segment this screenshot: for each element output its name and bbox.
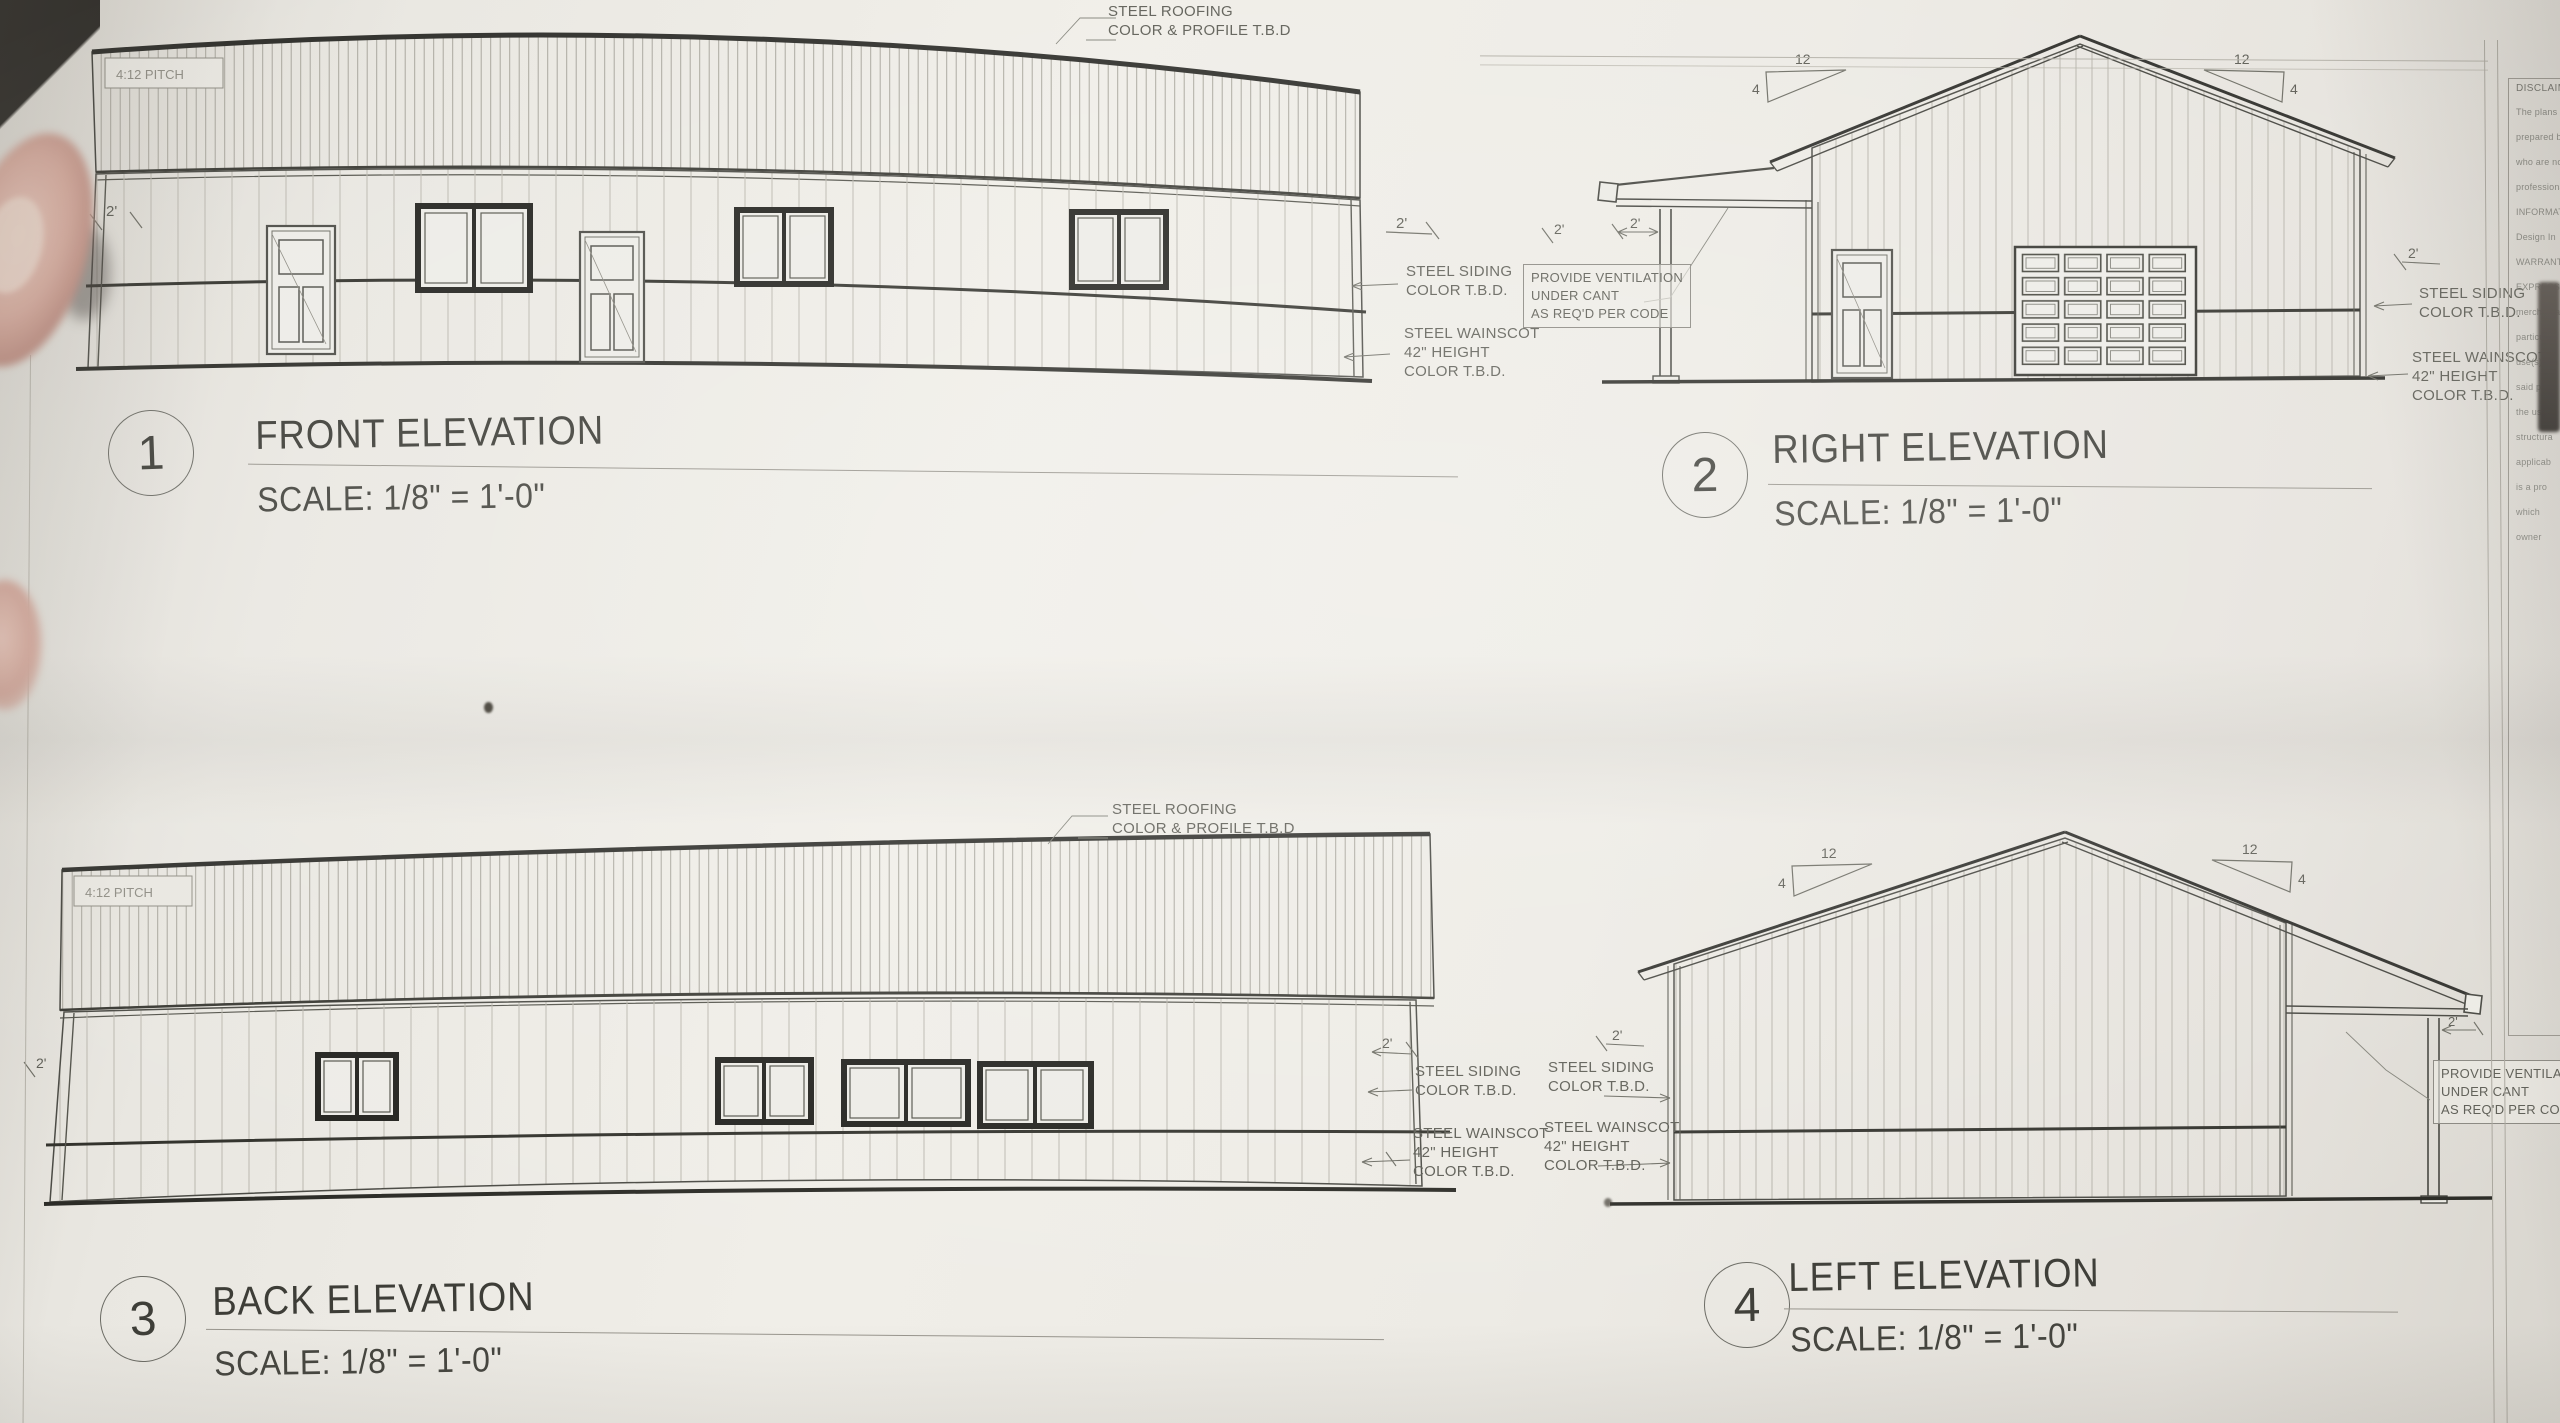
- note-line: COLOR & PROFILE T.B.D: [1112, 819, 1295, 838]
- back-window-3: [844, 1059, 968, 1127]
- pitch-rise-label: 12: [1795, 51, 1811, 67]
- back-roof: 4:12 PITCH: [60, 834, 1434, 1018]
- pitch-rise-label: 12: [2242, 841, 2258, 857]
- right-pitch-symbol-left: 12 4: [1752, 51, 1846, 102]
- left-elevation-scale: SCALE: 1/8" = 1'-0": [1790, 1316, 2079, 1360]
- note-line: 42" HEIGHT: [1544, 1137, 1680, 1156]
- disclaimer-line: prepared by: [2516, 125, 2560, 150]
- pitch-run-label: 4: [2298, 871, 2306, 887]
- right-note-arrows: [2368, 302, 2412, 380]
- front-entry-door-2: [580, 232, 644, 362]
- note-line: PROVIDE VENTILATION: [1531, 269, 1683, 287]
- right-left-overhang-dim: 2': [1554, 221, 1564, 237]
- title-rule: [248, 464, 1458, 478]
- finger-holding-paper: [0, 580, 42, 710]
- right-entry-door: [1832, 250, 1892, 378]
- disclaimer-line: owner: [2516, 525, 2560, 550]
- right-garage-door: [2015, 247, 2196, 375]
- left-ventilation-note: PROVIDE VENTILATION UNDER CANT AS REQ'D …: [2433, 1060, 2560, 1124]
- front-window-2: [737, 207, 831, 287]
- front-elevation-drawing: 4:12 PITCH: [30, 0, 1470, 420]
- elevation-number-3: 3: [98, 1274, 188, 1364]
- title-rule: [206, 1329, 1384, 1340]
- back-pitch-tag: 4:12 PITCH: [85, 885, 153, 900]
- left-wainscot-note: STEEL WAINSCOT 42" HEIGHT COLOR T.B.D.: [1544, 1118, 1680, 1175]
- right-eave-overhang-dim: 2': [2408, 245, 2418, 261]
- disclaimer-line: applicab: [2516, 450, 2560, 475]
- front-elevation-title: FRONT ELEVATION: [255, 409, 604, 460]
- back-wainscot-note: STEEL WAINSCOT 42" HEIGHT COLOR T.B.D.: [1413, 1124, 1549, 1181]
- disclaimer-line: Design In: [2516, 225, 2560, 250]
- note-line: STEEL WAINSCOT: [1413, 1124, 1549, 1143]
- note-line: 42" HEIGHT: [1413, 1143, 1549, 1162]
- paper-speck: [1604, 1198, 1612, 1207]
- front-roofing-leader: [1056, 18, 1116, 44]
- note-line: STEEL SIDING: [1406, 262, 1512, 281]
- left-left-overhang-dim: 2': [1612, 1027, 1622, 1043]
- front-siding-note: STEEL SIDING COLOR T.B.D.: [1406, 262, 1512, 300]
- front-entry-door-1: [267, 226, 335, 354]
- left-canopy-overhang-dim: 2': [2448, 1014, 2458, 1029]
- right-elevation-title: RIGHT ELEVATION: [1772, 423, 2109, 474]
- right-ventilation-note: PROVIDE VENTILATION UNDER CANT AS REQ'D …: [1523, 264, 1691, 328]
- note-line: STEEL WAINSCOT: [1404, 324, 1540, 343]
- front-window-1: [418, 203, 530, 293]
- back-left-overhang-dim: 2': [36, 1055, 46, 1071]
- note-line: COLOR T.B.D.: [1544, 1156, 1680, 1175]
- disclaimer-line: WARRANTIES: [2516, 250, 2560, 275]
- back-right-overhang-dim: 2': [1382, 1035, 1392, 1051]
- front-window-3: [1072, 209, 1166, 290]
- note-line: AS REQ'D PER CODE: [2441, 1101, 2560, 1119]
- title-rule: [1768, 484, 2372, 489]
- note-line: STEEL SIDING: [1548, 1058, 1654, 1077]
- right-canopy-dim: 2': [1612, 215, 1658, 239]
- disclaimer-panel: DISCLAIMER The plans prepared by who are…: [2508, 78, 2560, 1036]
- note-line: COLOR T.B.D.: [1548, 1077, 1654, 1096]
- front-left-overhang-dim: 2': [106, 203, 117, 220]
- disclaimer-line: which: [2516, 500, 2560, 525]
- front-right-overhang-dim: 2': [1396, 215, 1407, 232]
- disclaimer-line: who are not: [2516, 150, 2560, 175]
- note-line: STEEL ROOFING: [1108, 2, 1291, 21]
- disclaimer-title: DISCLAIMER: [2516, 83, 2560, 94]
- right-elevation-scale: SCALE: 1/8" = 1'-0": [1774, 490, 2063, 534]
- elevation-number-1: 1: [107, 409, 196, 498]
- left-elevation-title: LEFT ELEVATION: [1788, 1251, 2100, 1301]
- note-line: COLOR T.B.D.: [1413, 1162, 1549, 1181]
- elevation-number-2: 2: [1661, 431, 1748, 518]
- front-roofing-note: STEEL ROOFING COLOR & PROFILE T.B.D: [1108, 2, 1291, 40]
- left-pitch-symbol-left: 12 4: [1778, 845, 1872, 896]
- note-line: UNDER CANT: [1531, 287, 1683, 305]
- right-grade-line: [1602, 378, 2385, 382]
- left-pitch-symbol-right: 12 4: [2212, 841, 2306, 892]
- back-window-1: [318, 1052, 396, 1121]
- left-elevation-drawing: 12 4 12 4 2' 2': [1540, 800, 2560, 1230]
- disclaimer-line: professional: [2516, 175, 2560, 200]
- left-vent-leader: [2346, 1032, 2430, 1100]
- back-window-2: [718, 1057, 811, 1125]
- pitch-run-label: 4: [1752, 81, 1760, 97]
- note-line: COLOR T.B.D.: [1415, 1081, 1521, 1100]
- photo-of-elevation-sheet: 4:12 PITCH: [0, 0, 2560, 1423]
- disclaimer-line: The plans: [2516, 100, 2560, 125]
- back-window-4: [980, 1061, 1091, 1129]
- note-line: STEEL SIDING: [1415, 1062, 1521, 1081]
- pitch-run-label: 4: [2290, 81, 2298, 97]
- note-line: UNDER CANT: [2441, 1083, 2560, 1101]
- back-elevation-title: BACK ELEVATION: [212, 1275, 535, 1326]
- photo-corner-background: [0, 0, 100, 132]
- pitch-rise-label: 12: [1821, 845, 1837, 861]
- disclaimer-line: is a pro: [2516, 475, 2560, 500]
- right-canopy-overhang-dim: 2': [1630, 215, 1640, 231]
- disclaimer-line: INFORMATION: [2516, 200, 2560, 225]
- note-line: 42" HEIGHT: [1404, 343, 1540, 362]
- note-line: STEEL ROOFING: [1112, 800, 1295, 819]
- note-line: PROVIDE VENTILATION: [2441, 1065, 2560, 1083]
- left-siding-note: STEEL SIDING COLOR T.B.D.: [1548, 1058, 1654, 1096]
- back-elevation-drawing: 4:12 PITCH: [20, 800, 1470, 1230]
- front-elevation-scale: SCALE: 1/8" = 1'-0": [257, 476, 546, 520]
- front-pitch-tag: 4:12 PITCH: [116, 67, 184, 82]
- paper-speck: [484, 702, 493, 713]
- back-elevation-scale: SCALE: 1/8" = 1'-0": [214, 1340, 503, 1384]
- right-elevation-drawing: 2' 12 4 12 4 2' 2': [1540, 10, 2490, 430]
- title-rule: [1784, 1308, 2398, 1312]
- note-line: COLOR & PROFILE T.B.D: [1108, 21, 1291, 40]
- note-line: COLOR T.B.D.: [1404, 362, 1540, 381]
- left-gable-wall: [1668, 838, 2292, 1200]
- front-wainscot-note: STEEL WAINSCOT 42" HEIGHT COLOR T.B.D.: [1404, 324, 1540, 381]
- elevation-number-4: 4: [1703, 1261, 1790, 1348]
- note-line: COLOR T.B.D.: [1406, 281, 1512, 300]
- note-line: STEEL WAINSCOT: [1544, 1118, 1680, 1137]
- note-line: AS REQ'D PER CODE: [1531, 305, 1683, 323]
- pitch-run-label: 4: [1778, 875, 1786, 891]
- back-roofing-note: STEEL ROOFING COLOR & PROFILE T.B.D: [1112, 800, 1295, 838]
- clip-shadow: [2538, 282, 2560, 432]
- back-siding-note: STEEL SIDING COLOR T.B.D.: [1415, 1062, 1521, 1100]
